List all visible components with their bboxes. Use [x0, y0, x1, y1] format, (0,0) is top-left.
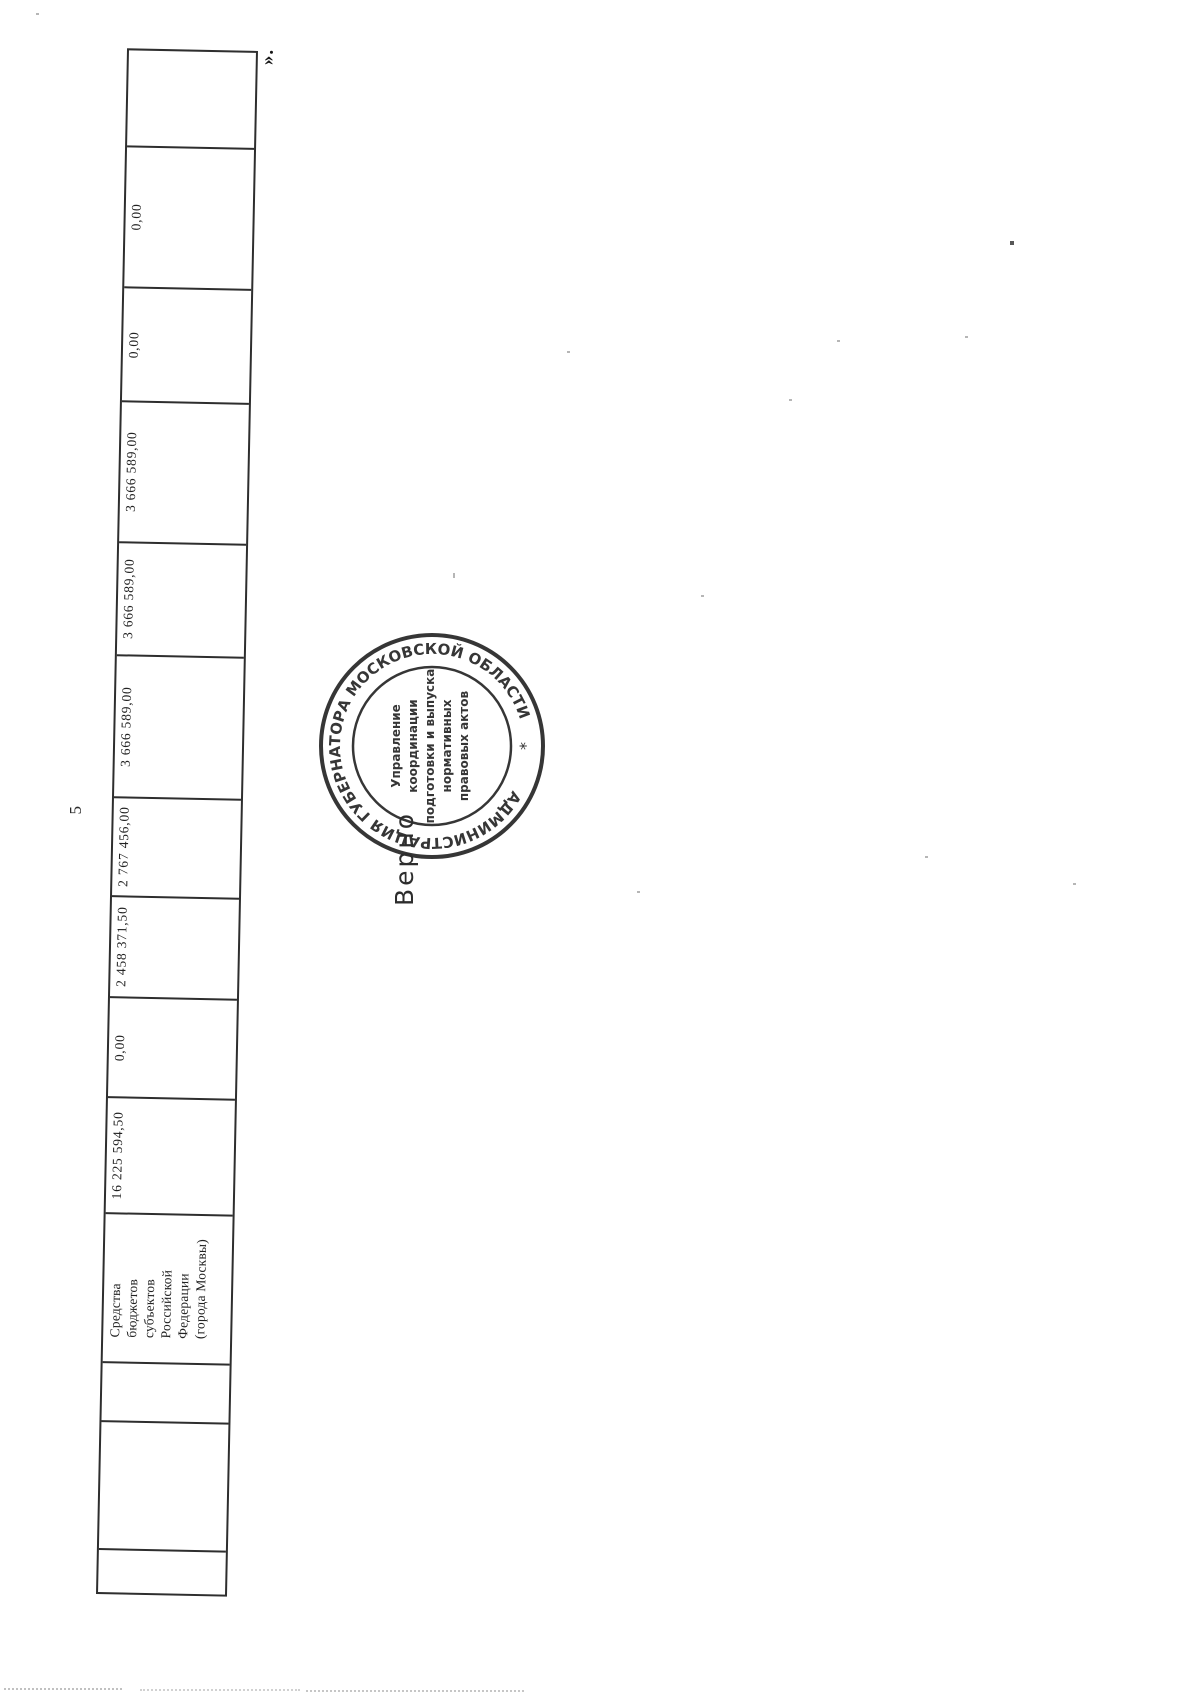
table-cell: 0,00 [122, 288, 251, 405]
stamp-center-line: координации [406, 699, 420, 792]
scan-edge-dots [140, 1689, 300, 1691]
table-cell [127, 50, 256, 150]
table-cell-row-header: Средства бюджетов субъектов Российской Ф… [103, 1214, 233, 1366]
scan-speck [1073, 883, 1076, 885]
cell-value: 0,00 [128, 203, 144, 230]
stamp-center-line: правовых актов [457, 690, 471, 801]
table-cell: 0,00 [108, 998, 237, 1101]
table-cell: 0,00 [124, 147, 254, 291]
scan-speck [567, 351, 570, 353]
stamp-separator-star: * [516, 742, 535, 750]
scan-edge-dots [4, 1688, 122, 1690]
scan-speck [453, 573, 455, 578]
cell-value: 0,00 [126, 331, 142, 358]
table-cell [99, 1422, 229, 1553]
table-cell: 2 458 371,50 [110, 897, 239, 1001]
cell-value: 2 458 371,50 [113, 906, 130, 987]
cell-value: 16 225 594,50 [109, 1111, 126, 1199]
scan-speck [789, 399, 792, 401]
stamp-center-line: Управление [389, 704, 403, 788]
table-cell [98, 1550, 226, 1595]
scan-edge-dots [306, 1690, 524, 1692]
official-stamp: АДМИНИСТРАЦИЯ ГУБЕРНАТОРА МОСКОВСКОЙ ОБЛ… [312, 626, 552, 866]
scan-speck [1010, 241, 1014, 245]
table-column-strip: 0,00 0,00 3 666 589,00 3 666 589,00 3 66… [96, 48, 258, 1596]
table-cell: 2 767 456,00 [112, 798, 241, 900]
scan-speck [36, 13, 39, 15]
cell-value: Средства бюджетов субъектов Российской Ф… [106, 1238, 210, 1340]
verification-note: Верно [390, 804, 419, 906]
cell-value: 2 767 456,00 [115, 807, 132, 888]
cell-value: 0,00 [112, 1034, 128, 1061]
closing-quote-mark: ». [257, 49, 279, 65]
table-cell: 3 666 589,00 [119, 402, 249, 546]
scan-speck [965, 336, 968, 338]
cell-value: 3 666 589,00 [118, 686, 135, 767]
table-cell: 16 225 594,50 [106, 1098, 235, 1217]
page-number: 5 [66, 806, 86, 815]
scan-speck [637, 891, 640, 893]
cell-value: 3 666 589,00 [123, 432, 140, 513]
scan-speck [837, 340, 840, 342]
table-cell: 3 666 589,00 [114, 656, 244, 801]
stamp-center-line: нормативных [440, 699, 454, 792]
table-cell: 3 666 589,00 [117, 543, 246, 659]
scan-speck [925, 856, 928, 858]
table-cell [101, 1363, 229, 1425]
stamp-center-line: подготовки и выпуска [423, 669, 437, 824]
scanned-document-page: { "page": { "number": "5", "closing_quot… [0, 0, 1200, 1697]
scan-speck [701, 595, 704, 597]
cell-value: 3 666 589,00 [120, 559, 137, 640]
